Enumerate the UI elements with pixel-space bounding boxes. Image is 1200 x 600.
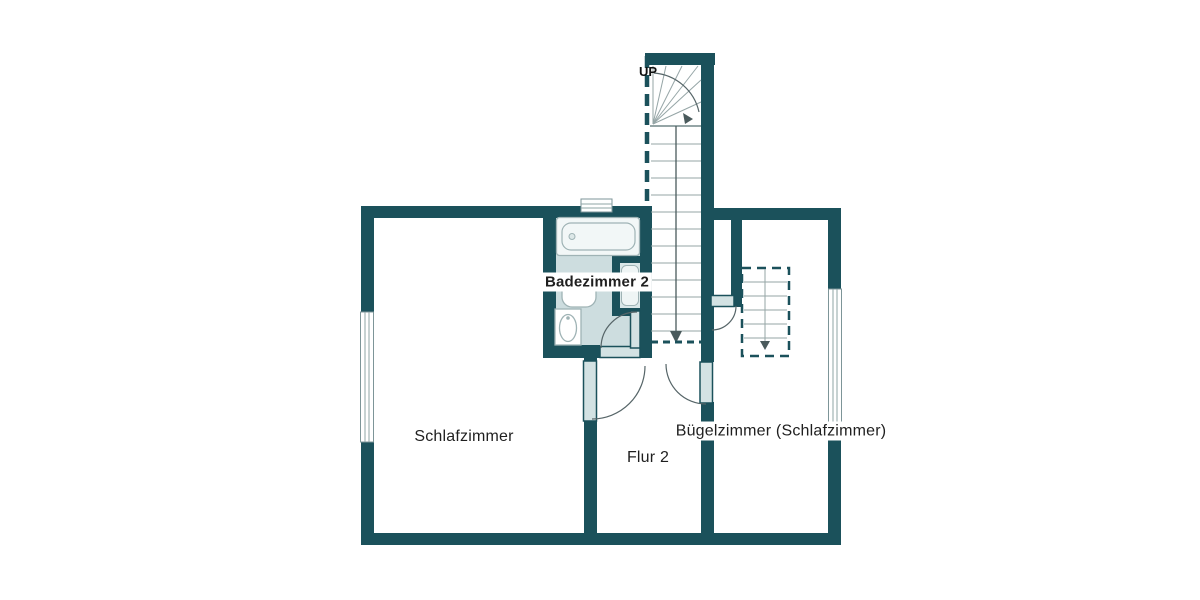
stair-attic-dashed	[742, 268, 789, 356]
door-bedroom	[584, 361, 646, 421]
wall-left-upper	[361, 206, 374, 312]
stair-winder-treads	[650, 66, 701, 126]
wall-bedroom-hall-lower	[584, 421, 597, 533]
window-ironing-right	[829, 289, 842, 432]
wall-top-right	[701, 208, 841, 220]
door-stair-niche	[711, 296, 736, 331]
wall-right-lower	[828, 432, 841, 545]
stairs-up-label: UP	[639, 64, 657, 79]
window-bedroom-left	[361, 312, 374, 442]
room-label-hallway: Flur 2	[627, 449, 669, 467]
wall-left-lower	[361, 442, 374, 545]
wall-right-upper	[828, 208, 841, 289]
stair-main	[647, 56, 701, 343]
room-label-bathroom: Badezimmer 2	[542, 273, 652, 292]
wall-bath-bottom-left	[543, 345, 600, 358]
washbasin	[562, 289, 596, 307]
bathtub	[557, 218, 640, 256]
floor-plan-drawing	[0, 0, 1200, 600]
door-ironing-room	[666, 362, 713, 404]
stair-walkline-arrow	[683, 113, 693, 124]
window-bath-top	[581, 199, 612, 212]
wall-bottom	[361, 533, 841, 545]
toilet	[555, 309, 581, 345]
room-label-ironing-room: Bügelzimmer (Schlafzimmer)	[673, 422, 890, 441]
wall-stair-right	[701, 53, 714, 362]
wall-stair-niche	[731, 220, 742, 307]
wall-bath-bottom-right	[640, 345, 652, 358]
room-label-bedroom: Schlafzimmer	[414, 428, 513, 446]
attic-stair-down-arrow	[760, 341, 770, 350]
floor-plan: Schlafzimmer Flur 2 Bügelzimmer (Schlafz…	[0, 0, 1200, 600]
